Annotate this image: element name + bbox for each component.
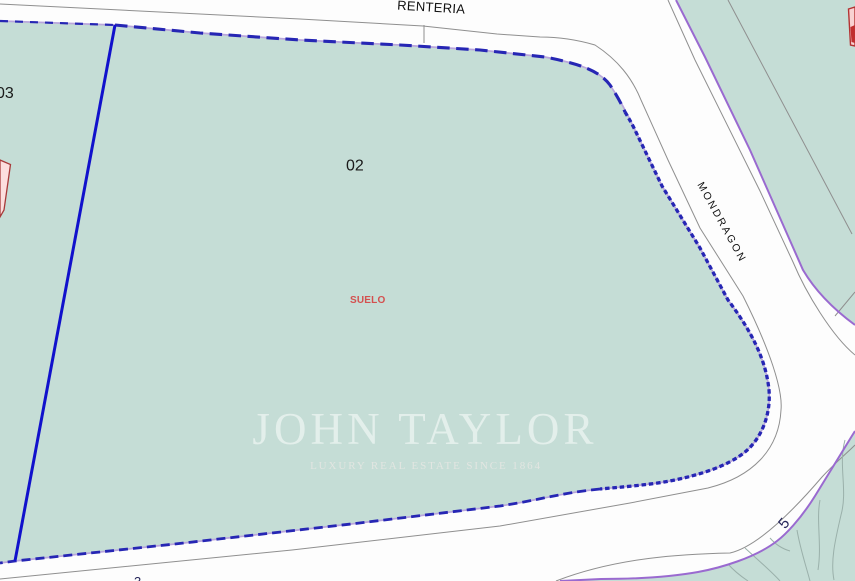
svg-text:02: 02	[346, 158, 364, 175]
svg-text:SUELO: SUELO	[350, 295, 385, 306]
svg-text:3: 3	[134, 574, 141, 581]
svg-text:LUXURY REAL ESTATE SINCE 1864: LUXURY REAL ESTATE SINCE 1864	[310, 460, 542, 472]
svg-text:JOHN TAYLOR: JOHN TAYLOR	[252, 404, 597, 454]
svg-text:03: 03	[0, 85, 14, 102]
